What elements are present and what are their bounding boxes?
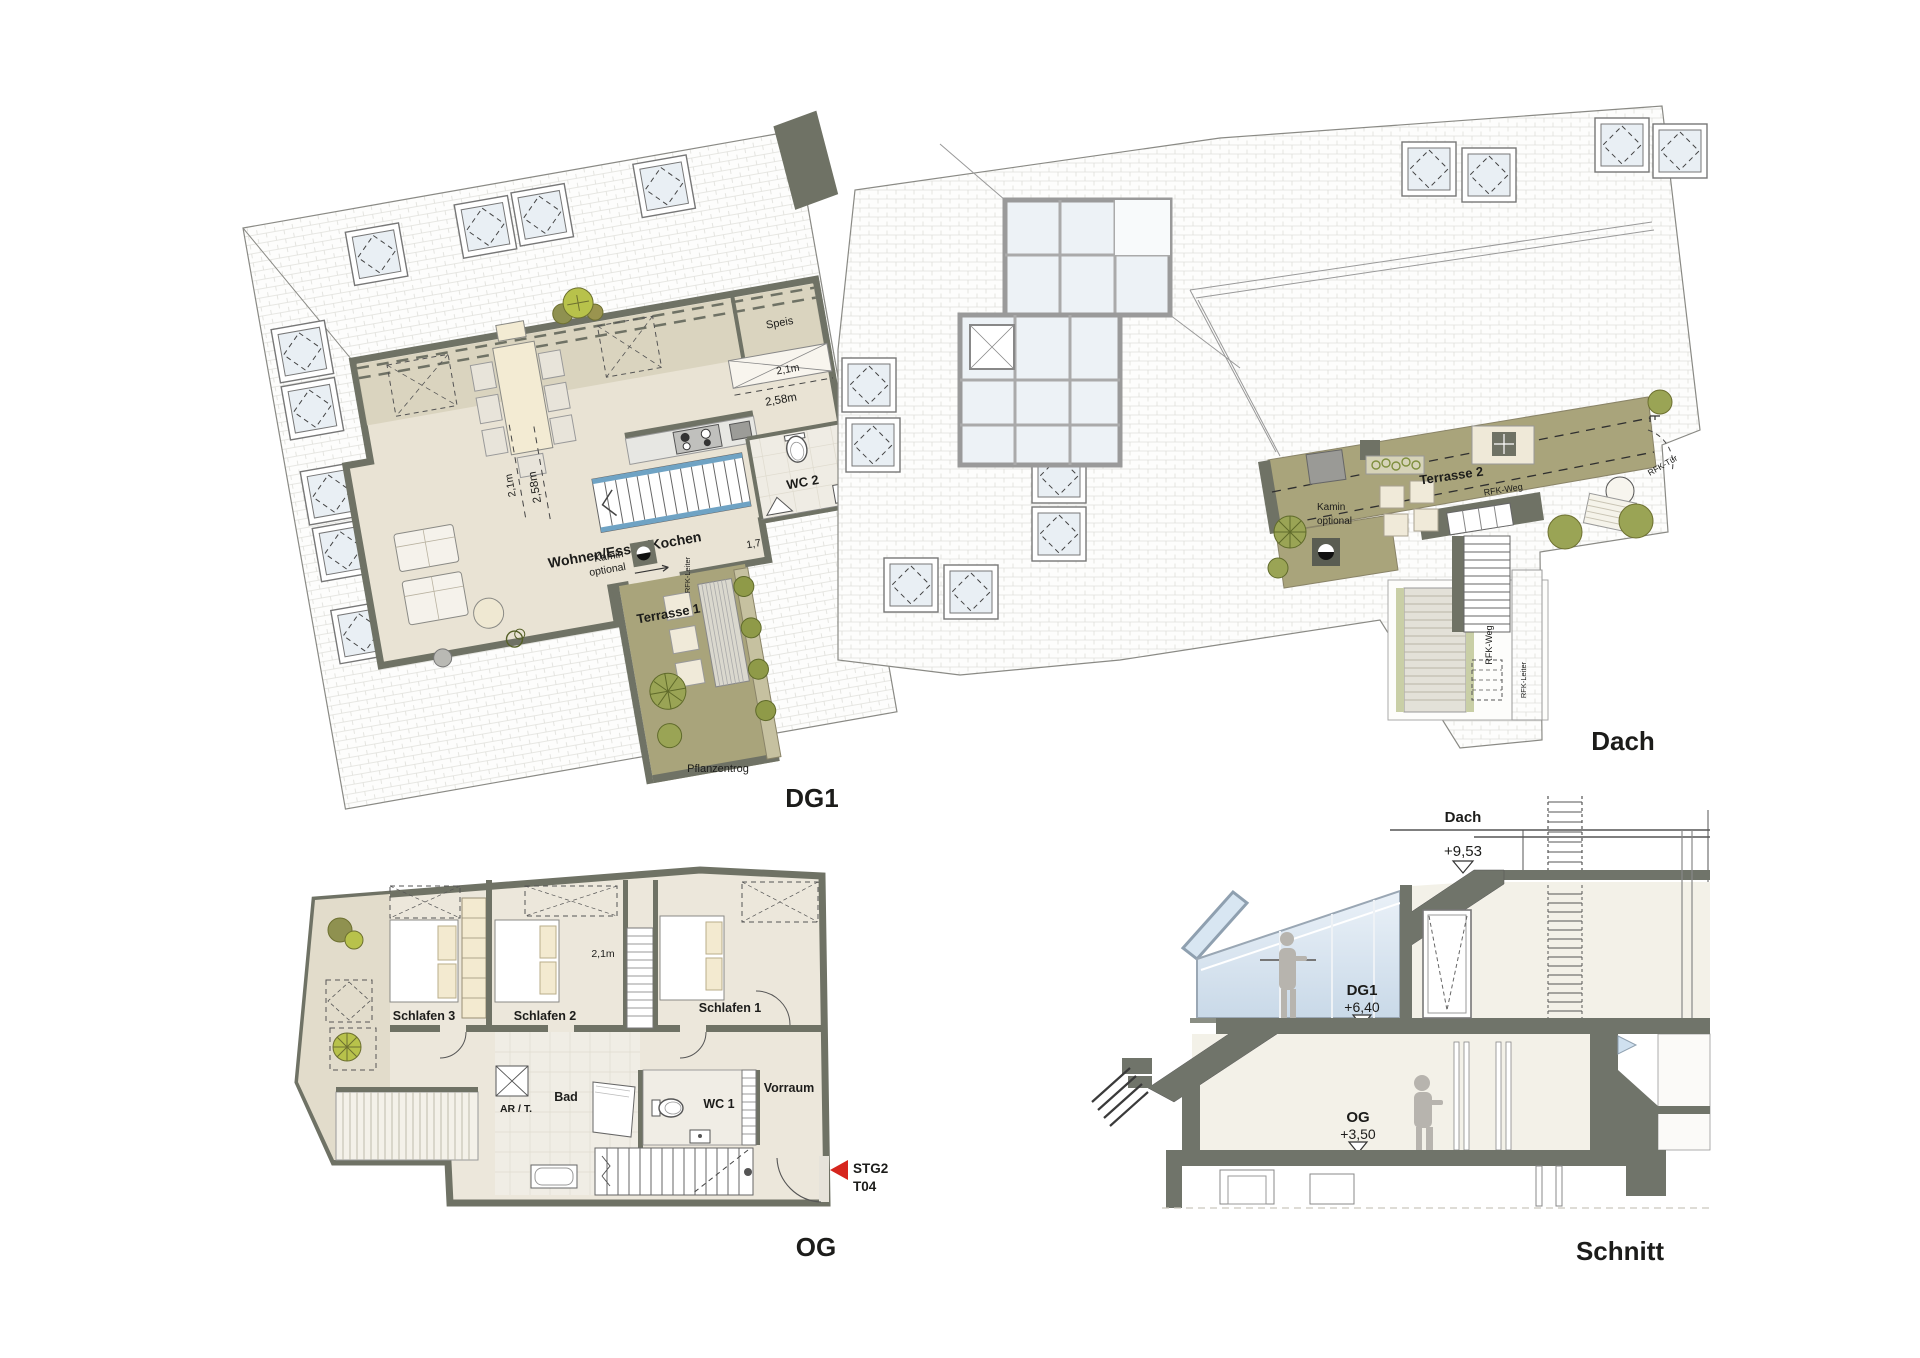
schnitt-drawing: Dach +9,53 — [1070, 790, 1720, 1290]
label-t04: T04 — [853, 1179, 877, 1194]
label-rfk-leiter: RFK-Leiter — [1519, 661, 1528, 698]
label-wc1: WC 1 — [703, 1097, 734, 1111]
label-schlafen3: Schlafen 3 — [393, 1009, 456, 1023]
label-dach-kamin-1: Kamin — [1317, 502, 1345, 513]
label-dim-17: 1,7 — [745, 537, 762, 551]
label-lvl-dach: +9,53 — [1444, 843, 1482, 860]
label-schnitt-dg1: DG1 — [1347, 982, 1378, 999]
label-vorraum: Vorraum — [764, 1081, 814, 1095]
stg2-marker-icon — [830, 1160, 848, 1180]
schnitt-og-interior — [1192, 1034, 1590, 1150]
dg1-plan-panel: Speis 2,1m 2,58m — [230, 110, 850, 830]
schnitt-og-slab — [1166, 1150, 1666, 1166]
og-wc1 — [643, 1070, 760, 1145]
label-schlafen2: Schlafen 2 — [514, 1009, 577, 1023]
dach-title: Dach — [1591, 726, 1655, 756]
og-plan-drawing: Schlafen 3 Schlafen 2 Schlafen 1 2,1m AR… — [290, 860, 910, 1280]
schnitt-panel: Dach +9,53 — [1070, 790, 1720, 1290]
schnitt-flat-roof — [1478, 870, 1710, 880]
label-dach-kamin-2: optional — [1317, 516, 1352, 527]
schnitt-title: Schnitt — [1576, 1236, 1664, 1266]
label-schnitt-og: OG — [1346, 1109, 1369, 1126]
label-rfk-weg-stair: RFK-Weg — [1484, 625, 1494, 664]
og-stairs — [595, 1148, 753, 1195]
schnitt-roof-parapet — [1390, 796, 1710, 882]
label-schnitt-dach: Dach — [1445, 809, 1482, 826]
schnitt-eaves — [1092, 1058, 1152, 1126]
og-plan-panel: Schlafen 3 Schlafen 2 Schlafen 1 2,1m AR… — [290, 860, 910, 1280]
label-og-dim21: 2,1m — [591, 948, 615, 960]
label-dg1-rfk-leiter: RFK-Leiter — [683, 556, 692, 593]
label-ar-t: AR / T. — [500, 1103, 532, 1115]
label-lvl-og: +3,50 — [1340, 1126, 1376, 1142]
dg1-fireplace — [630, 539, 658, 567]
level-marker-dach — [1453, 861, 1473, 873]
label-stg2: STG2 — [853, 1161, 888, 1176]
og-title: OG — [796, 1232, 836, 1262]
schnitt-dg1-slab — [1216, 1018, 1710, 1034]
floorplan-sheet: Speis 2,1m 2,58m — [0, 0, 1920, 1358]
label-bad: Bad — [554, 1090, 578, 1104]
dach-plan-drawing: Terrasse 2 RFK-Weg RFK-Tür Kamin optiona… — [820, 100, 1720, 800]
label-schlafen1: Schlafen 1 — [699, 1001, 762, 1015]
dg1-plan-drawing: Speis 2,1m 2,58m — [230, 110, 850, 830]
label-lvl-dg1: +6,40 — [1344, 999, 1380, 1015]
dach-plan-panel: Terrasse 2 RFK-Weg RFK-Tür Kamin optiona… — [820, 100, 1720, 800]
label-pflanzentrog: Pflanzentrog — [687, 763, 749, 775]
og-balcony — [336, 1087, 478, 1160]
